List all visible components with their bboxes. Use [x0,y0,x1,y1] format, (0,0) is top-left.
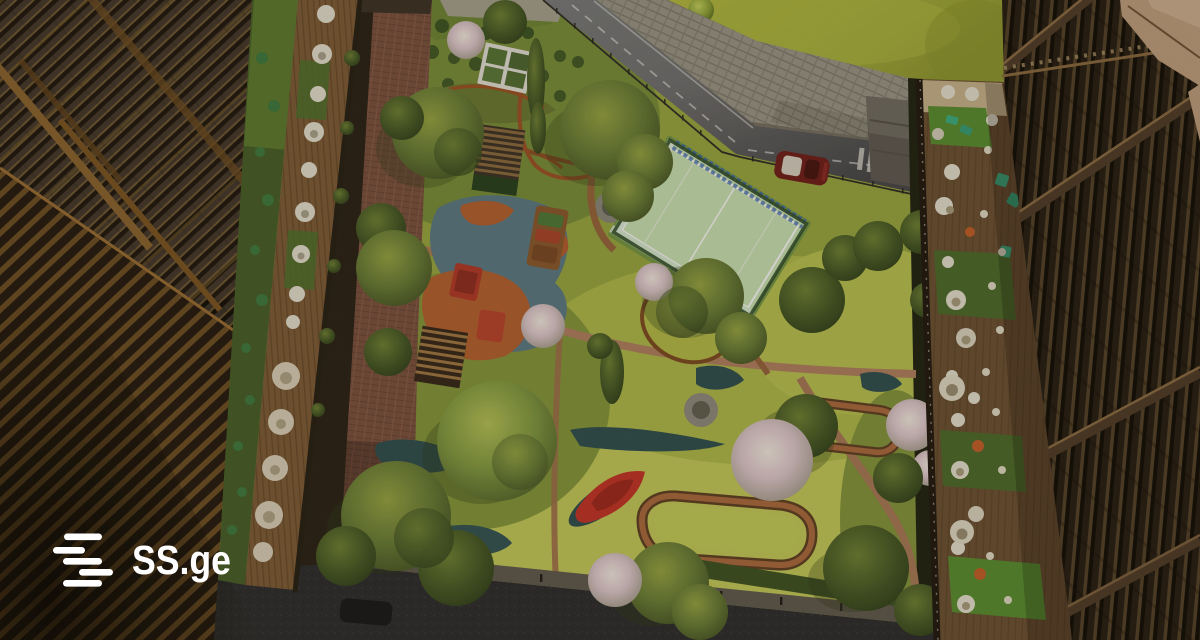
svg-text:SS.ge: SS.ge [132,537,231,583]
